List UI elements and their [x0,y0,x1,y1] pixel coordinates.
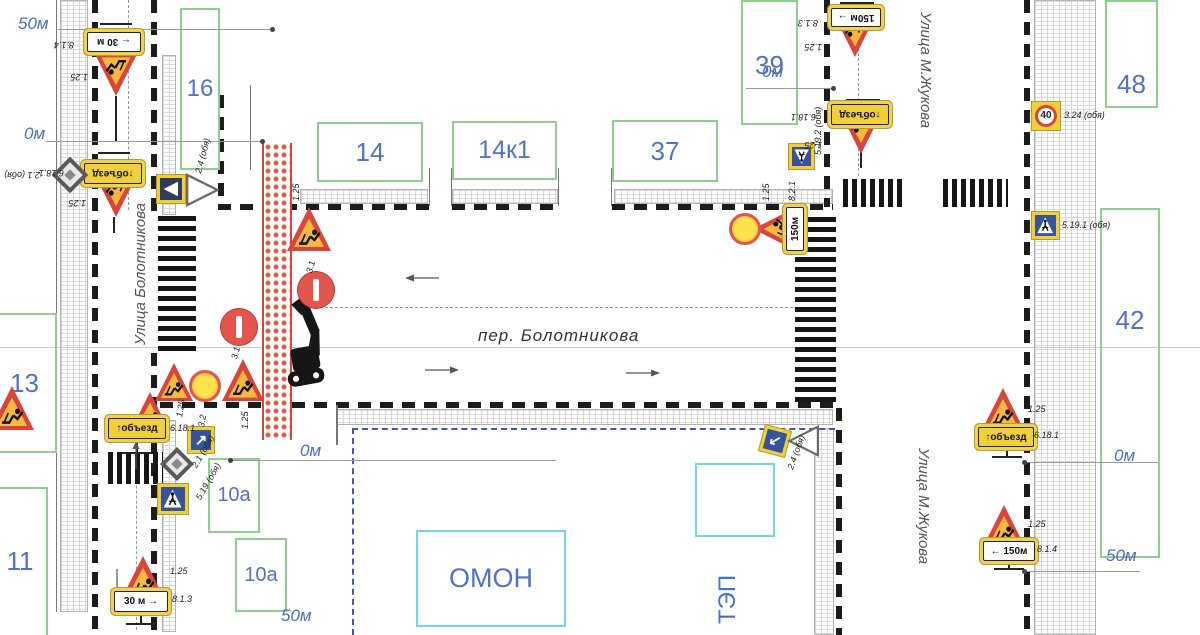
distance-marker-line [230,460,556,461]
info-plate: 150м [786,207,804,251]
compound-area [695,463,775,537]
sign-code-label: 5.19.1 (обя) [1062,220,1110,230]
roadworks-worker-icon [297,227,322,246]
info-plate: ↑объезд [84,163,142,184]
road-edge-dashed [452,204,558,210]
zebra-crossing [158,216,196,354]
worker-glyph [231,378,255,396]
roadworks-worker-icon [991,407,1015,425]
roadworks-sign-1-25 [287,207,331,251]
roadworks-worker-icon [104,59,128,77]
crosswalk-sign-5-19 [157,483,189,515]
distance-marker-dot [228,458,233,463]
traffic-works-scheme: Улица Болотникова пер. Болотникова Улица… [0,0,1200,635]
temporary-traffic-signal [729,213,761,245]
road-edge-dashed [836,408,842,635]
roadworks-sign-1-25 [0,386,34,430]
plate-text: ↑объезд [985,432,1026,443]
zebra-crossing [843,179,906,207]
building-number: 37 [651,136,680,167]
sign-code-label: 1.25 [70,72,88,82]
framed-face [160,178,182,200]
building-11: 11 [0,487,48,635]
sign-code-label: 5.19.2 (обя) [813,107,823,155]
pedestrian-icon [162,488,183,509]
sign-code-label: 3.24 (обя) [1064,110,1105,120]
tep-compound-label: ТЭП [714,575,742,624]
roadworks-sign-1-25 [95,54,137,96]
distance-marker-text: 0м [762,62,783,82]
plate-text: ↑объезд [839,109,880,120]
building-48: 48 [1105,0,1158,108]
street-label-per-bolotnikova: пер. Болотникова [478,326,639,346]
sign-code-label: 6.18.1 [39,168,64,178]
sign-code-label: 1.25 [291,183,301,201]
plate-text: ← 150м [991,546,1028,557]
direction-arrow-left [404,270,440,288]
roadworks-worker-icon [231,378,255,396]
sign-code-label: 1.25 [1028,404,1046,414]
info-plate: ← 150м [983,541,1035,561]
plate-text: 150м [790,217,801,241]
direction-arrow-right [625,365,661,383]
worker-glyph [0,406,24,425]
distance-marker-text: 0м [1114,446,1135,466]
sign-pole [846,99,880,101]
sign-code-label: 8.1.4 [1037,544,1057,554]
building-14: 14 [317,122,423,182]
building-number: 14 [356,137,385,168]
sign-code-label: 1.25 [761,183,771,201]
sidewalk-hatch [452,189,558,204]
pedestrian-icon [793,148,810,165]
sidewalk-hatch [814,428,834,635]
zebra-crossing [943,179,1008,207]
distance-marker-dot [260,139,265,144]
sign-pole [860,152,862,168]
building-number: 16 [187,75,214,103]
plate-text: 30 м → [124,596,158,607]
distance-marker-line [746,88,833,89]
give-way-sign-2-4 [186,173,220,207]
sign-pole [126,623,156,625]
sidewalk-hatch [300,189,428,204]
distance-marker-dot [1022,569,1027,574]
building-number: 42 [1116,305,1145,336]
wall-line [429,168,430,206]
roadworks-sign-1-25 [222,359,264,401]
sidewalk-hatch [614,189,833,204]
framed-give-way-sign [156,174,186,204]
building-number: 10а [244,564,277,587]
crosswalk-face [1035,215,1056,236]
building-14к1: 14к1 [452,121,557,180]
road-edge-dashed [824,0,830,207]
building-number: 48 [1117,69,1146,100]
info-plate: ↑объезд [831,104,889,125]
temporary-traffic-signal [189,370,221,402]
sign-code-label: 6.18.1 [170,423,195,433]
building-10а: 10а [235,538,287,612]
sign-code-label: 1.25 [68,198,86,208]
sidewalk-hatch [60,0,88,612]
building-37: 37 [612,120,718,182]
crosswalk-sign-5-19 [1031,211,1060,240]
sign-pole [994,568,1024,570]
info-plate: ← 30 м [87,32,141,52]
plate-text: ↑объезд [92,168,133,179]
worker-glyph [992,524,1016,542]
sign-pole [992,456,1022,458]
info-plate: ↑объезд [108,418,166,439]
building-number: 11 [7,546,34,577]
sign-code-label: 1.25 [1028,519,1046,529]
roadworks-sign-1-25 [982,388,1024,430]
sign-code-label: 8.1.3 [798,18,818,28]
sign-code-label: 8.1.4 [54,40,74,50]
worker-glyph [104,59,128,77]
distance-marker-dot [270,27,275,32]
giveway-face [188,177,215,204]
lane-guide-line [300,307,833,308]
roadworks-worker-icon [992,524,1016,542]
no-entry-sign-3-1 [221,309,257,345]
sign-pole [840,2,874,4]
building-42: 42 [1100,208,1160,558]
sign-code-label: 2.1 (обя) [4,170,40,180]
wall-line [56,0,57,612]
sign-pole [115,96,117,142]
distance-marker-text: 50м [281,606,312,626]
sign-pole [98,152,130,154]
direction-arrow-up [131,440,141,475]
distance-marker-line [58,29,272,30]
info-plate: 150м → [831,8,881,27]
building-number: 10а [217,484,250,507]
crosswalk-face [161,487,185,511]
plate-text: ← 30 м [97,37,131,48]
building-13: 13 [0,313,57,453]
direction-arrow-right [424,362,460,380]
wall-line [250,85,251,170]
building-number: 14к1 [478,136,531,165]
street-label-bolotnikova: Улица Болотникова [132,203,149,345]
street-label-mzhukova-top: Улица М.Жукова [917,12,934,128]
sign-code-label: 8.1.3 [172,594,192,604]
distance-marker-line [1024,462,1158,463]
sign-pole [100,23,132,25]
pedestrian-icon [1036,216,1054,234]
no-entry-bar [236,316,242,338]
plate-text: 150м → [838,12,875,23]
distance-marker-text: 50м [1106,546,1137,566]
distance-marker-dot [1022,460,1027,465]
sidewalk-hatch [1034,0,1096,635]
plate-text: ↑объезд [116,423,157,434]
speed-limit-40-sign: 40 [1031,101,1061,131]
no-entry-bar [313,279,319,301]
sign-code-label: 1.25 [170,566,188,576]
street-label-mzhukova-bottom: Улица М.Жукова [915,448,932,564]
sign-code-label: 1.25 [804,42,822,52]
distance-marker-text: 0м [300,441,321,461]
compound-label: ОМОН [449,563,533,594]
distance-marker-line [46,141,262,142]
sidewalk-hatch [336,409,833,425]
compound-area-ОМОН: ОМОН [416,530,566,627]
sign-code-label: 6.18.1 [1034,430,1059,440]
white-triangle [164,182,179,197]
info-plate: ↑объезд [978,427,1034,447]
wall-line [558,168,559,206]
arrow-face: ↗ [763,429,787,453]
worker-glyph [297,227,322,246]
speed-limit-value: 40 [1035,105,1057,127]
sign-code-label: 1.25 [240,411,250,429]
sign-code-label: 1.25 [174,399,187,418]
distance-marker-text: 50м [18,14,49,34]
distance-marker-line [1024,571,1140,572]
distance-marker-text: 0м [24,124,45,144]
wall-line [336,405,338,445]
sign-code-label: 3.2 [196,414,208,428]
distance-marker-dot [831,86,836,91]
sign-pole [113,217,115,233]
info-plate: 30 м → [114,591,168,612]
worker-glyph [991,407,1015,425]
sign-code-label: 8.2.1 [787,181,797,201]
no-entry-sign-3-1 [298,272,334,308]
roadworks-worker-icon [0,406,24,425]
